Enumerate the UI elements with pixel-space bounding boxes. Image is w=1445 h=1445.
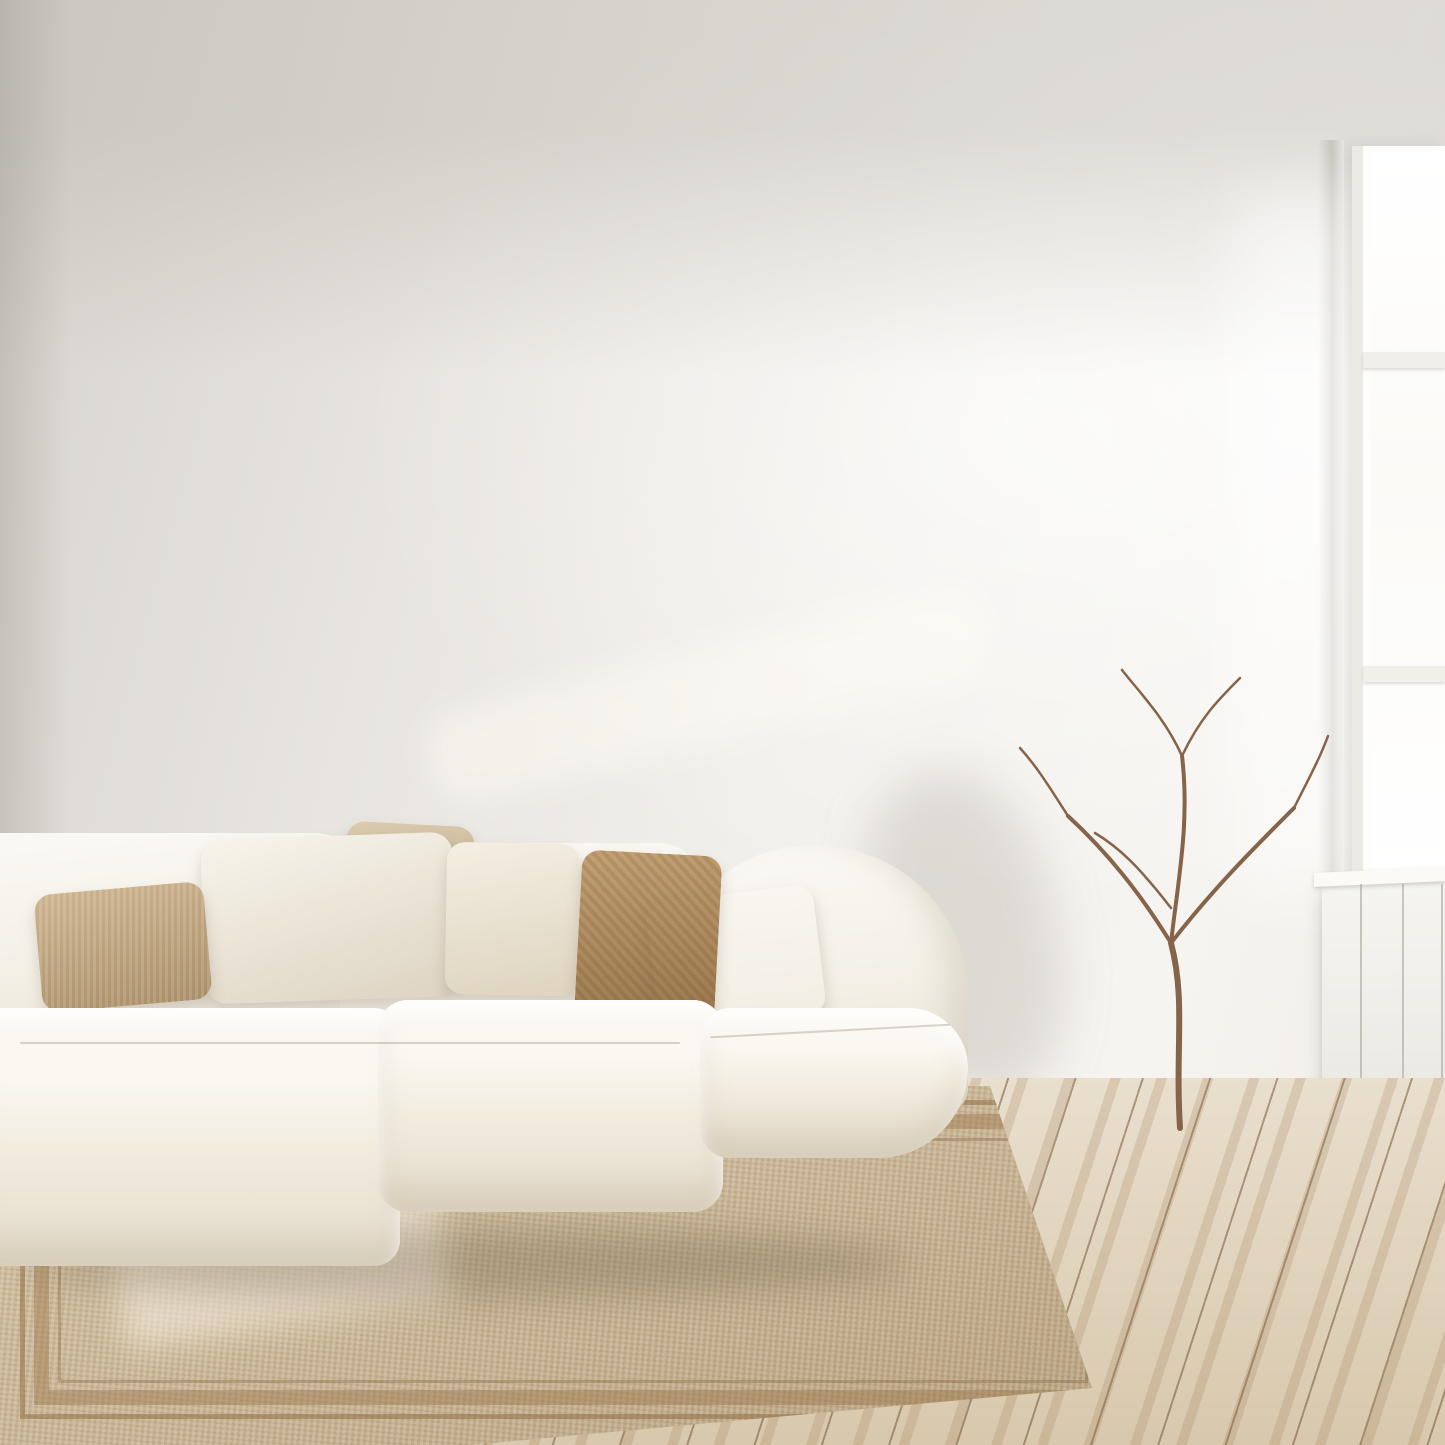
- throw-pillow-beige: [33, 881, 213, 1013]
- window-crossbar: [1363, 666, 1445, 682]
- dried-plant-branches: [990, 608, 1340, 1138]
- sofa-seat-cushion: [0, 1008, 400, 1266]
- scene: 75 x 100 cm November2024Mo.Di.Mi.Do.Fr.S…: [0, 0, 1445, 1445]
- window-crossbar: [1363, 352, 1445, 368]
- sofa-seat-cushion: [378, 1000, 723, 1212]
- window: [1352, 146, 1445, 882]
- sofa-seam: [20, 1042, 680, 1044]
- throw-pillow-white: [200, 832, 458, 1005]
- window-pane: [1371, 152, 1445, 876]
- throw-pillow-cream: [445, 842, 580, 996]
